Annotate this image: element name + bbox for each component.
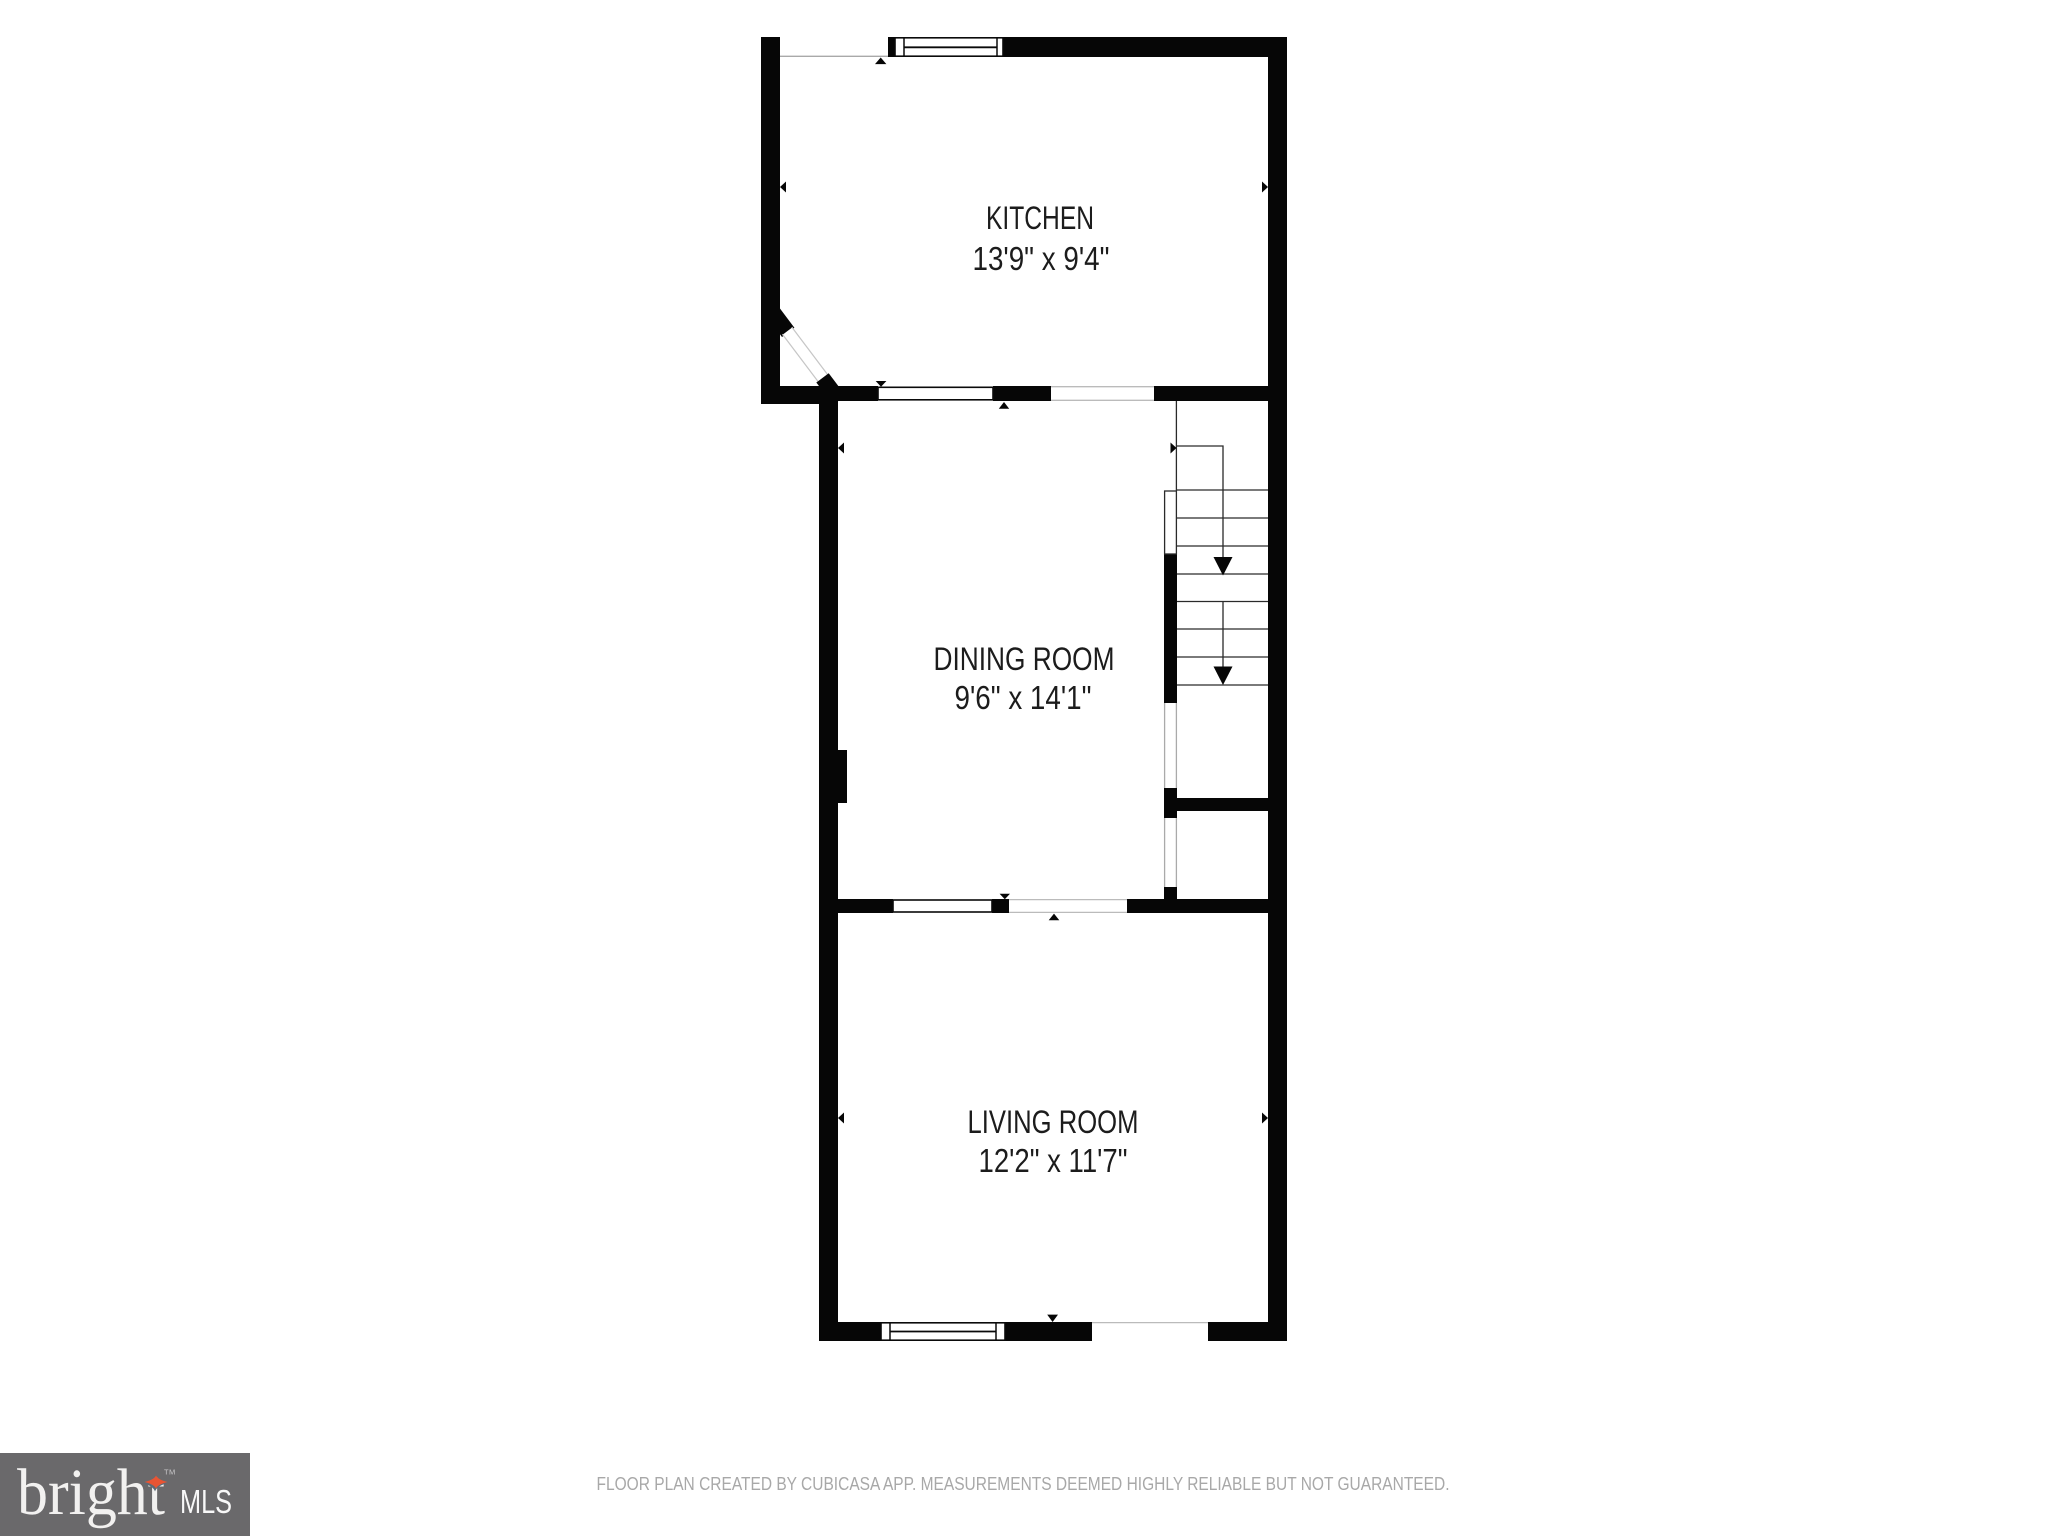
svg-text:9'6" x 14'1": 9'6" x 14'1" <box>955 680 1092 717</box>
svg-text:TM: TM <box>164 1468 176 1477</box>
svg-text:13'9" x 9'4": 13'9" x 9'4" <box>973 241 1110 278</box>
svg-text:LIVING ROOM: LIVING ROOM <box>968 1104 1139 1140</box>
svg-text:12'2" x 11'7": 12'2" x 11'7" <box>979 1143 1128 1180</box>
svg-text:bright: bright <box>17 1456 165 1529</box>
svg-text:FLOOR PLAN CREATED BY CUBICASA: FLOOR PLAN CREATED BY CUBICASA APP. MEAS… <box>597 1473 1450 1494</box>
svg-text:KITCHEN: KITCHEN <box>986 200 1094 236</box>
svg-text:MLS: MLS <box>180 1484 232 1521</box>
svg-text:DINING ROOM: DINING ROOM <box>934 641 1115 677</box>
